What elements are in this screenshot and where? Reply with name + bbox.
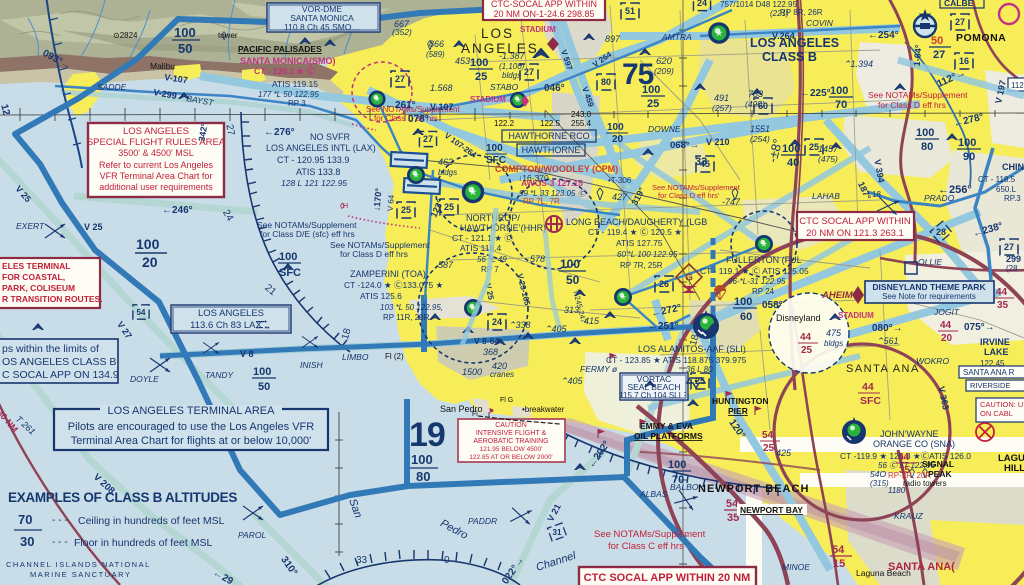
svg-text:PARK, COLISEUM: PARK, COLISEUM: [2, 283, 75, 293]
svg-text:JOHN’WAYNE: JOHN’WAYNE: [880, 429, 939, 439]
svg-text:for Class D eff hrs: for Class D eff hrs: [340, 249, 408, 259]
svg-text:255.4: 255.4: [571, 119, 592, 128]
svg-text:CT - 123.85 ★ ATIS 118.875 3: CT - 123.85 ★ ATIS 118.875 379.975: [606, 355, 747, 365]
svg-text:50: 50: [566, 273, 580, 287]
svg-text:FULLERTON (FUL: FULLERTON (FUL: [726, 255, 802, 265]
svg-text:CALBE: CALBE: [944, 0, 974, 8]
svg-text:Refer to current Los Angeles: Refer to current Los Angeles: [99, 160, 214, 170]
svg-text:WOKRO: WOKRO: [916, 356, 949, 366]
svg-text:LOS ANGELES TERMINAL AREA: LOS ANGELES TERMINAL AREA: [108, 405, 276, 417]
svg-text:←261°: ←261°: [385, 100, 416, 111]
svg-text:35: 35: [899, 465, 911, 476]
svg-text:•breakwater: •breakwater: [522, 405, 565, 414]
svg-text:(475): (475): [818, 154, 838, 164]
svg-text:CAUTION: CAUTION: [495, 422, 527, 429]
svg-text:STADIUM: STADIUM: [838, 311, 874, 320]
svg-text:54O: 54O: [870, 469, 886, 479]
svg-text:587: 587: [438, 260, 454, 270]
svg-text:ATIS 119.15: ATIS 119.15: [272, 79, 318, 89]
svg-text:100: 100: [174, 25, 196, 40]
svg-text:SADDE: SADDE: [97, 82, 127, 92]
svg-text:CLASS B: CLASS B: [762, 50, 817, 64]
svg-text:Fl (2): Fl (2): [385, 352, 404, 361]
svg-text:Floor in hundreds of feet MSL: Floor in hundreds of feet MSL: [74, 537, 212, 549]
svg-text:HILLS: HILLS: [1004, 463, 1024, 474]
svg-text:LOS ANGELES INTL (LAX): LOS ANGELES INTL (LAX): [266, 143, 376, 153]
svg-text:(315): (315): [870, 479, 889, 488]
svg-text:RP 7L, 7R: RP 7L, 7R: [523, 197, 560, 206]
svg-text:Fl G: Fl G: [500, 397, 513, 404]
svg-text:SIGNAL: SIGNAL: [922, 459, 954, 469]
svg-text:←225°: ←225°: [800, 88, 831, 99]
svg-text:NEWPORT BAY: NEWPORT BAY: [740, 505, 803, 515]
svg-text:COMPTON/WOODLEY (CPM): COMPTON/WOODLEY (CPM): [495, 164, 618, 174]
svg-text:0: 0: [444, 555, 450, 566]
svg-text:SANTA MONICA(SMO): SANTA MONICA(SMO): [240, 56, 336, 66]
svg-text:18: 18: [872, 190, 881, 199]
svg-text:SANTA ANA(: SANTA ANA(: [888, 561, 955, 573]
svg-text:462: 462: [438, 157, 453, 167]
svg-text:075°→: 075°→: [964, 322, 995, 333]
svg-text:866: 866: [429, 39, 444, 49]
svg-text:100: 100: [253, 366, 271, 378]
svg-text:←276°: ←276°: [264, 127, 295, 138]
svg-text:PIER: PIER: [728, 406, 748, 416]
svg-text:KRAUZ: KRAUZ: [894, 511, 924, 521]
svg-text:TANDY: TANDY: [205, 370, 235, 380]
svg-text:CT - 120.95 133.9: CT - 120.95 133.9: [277, 155, 349, 165]
svg-text:- - -: - - -: [52, 515, 68, 526]
svg-text:STADIUM→: STADIUM→: [470, 95, 514, 104]
svg-text:Pilots are encouraged to use t: Pilots are encouraged to use the Los Ang…: [68, 421, 314, 433]
svg-text:bldgs: bldgs: [824, 339, 843, 348]
svg-text:44: 44: [996, 287, 1008, 298]
svg-text:STABO: STABO: [490, 82, 519, 92]
svg-text:1-64°: 1-64°: [912, 44, 924, 67]
svg-text:↓16-370: ↓16-370: [518, 173, 549, 183]
svg-text:Terminal Area Chart for flight: Terminal Area Chart for flights at or be…: [71, 435, 312, 447]
svg-text:LIMBO: LIMBO: [342, 352, 369, 362]
svg-text:See Note for requirements: See Note for requirements: [882, 292, 976, 301]
svg-text:368: 368: [483, 347, 498, 357]
svg-text:V 25: V 25: [84, 222, 103, 232]
svg-text:27: 27: [1004, 242, 1014, 252]
svg-text:NEWPORT BEACH: NEWPORT BEACH: [698, 483, 809, 495]
svg-text:CAUTION: U: CAUTION: U: [980, 400, 1023, 409]
svg-text:←251°: ←251°: [648, 321, 679, 332]
svg-text:CHANNEL ISLANDS NATIONAL: CHANNEL ISLANDS NATIONAL: [6, 560, 151, 569]
svg-text:DISNEYLAND THEME PARK: DISNEYLAND THEME PARK: [872, 282, 986, 292]
svg-text:Malibu: Malibu: [150, 61, 175, 71]
svg-text:CT - 119.1 ★ Ⓒ ATIS 125.05: CT - 119.1 ★ Ⓒ ATIS 125.05: [700, 266, 809, 276]
svg-text:70: 70: [18, 512, 32, 527]
svg-text:44: 44: [898, 452, 910, 463]
svg-text:for Class D/E (sfc) eff hrs: for Class D/E (sfc) eff hrs: [260, 229, 355, 239]
svg-text:1.568: 1.568: [430, 83, 453, 93]
svg-text:26: 26: [659, 279, 669, 289]
svg-text:DOYLE: DOYLE: [130, 374, 159, 384]
svg-text:96-*L-31 122.95: 96-*L-31 122.95: [728, 277, 786, 286]
svg-text:RP 7R, 25R: RP 7R, 25R: [620, 261, 663, 270]
svg-text:112: 112: [1011, 81, 1024, 90]
svg-text:Fl: Fl: [472, 411, 478, 418]
svg-text:⊙2824: ⊙2824: [113, 31, 138, 40]
svg-text:(589): (589): [426, 50, 445, 59]
svg-text:491: 491: [714, 93, 729, 103]
svg-text:ATIS 133.8: ATIS 133.8: [296, 167, 340, 177]
svg-text:25: 25: [801, 345, 813, 356]
svg-text:HAWTHORNE’(HHR): HAWTHORNE’(HHR): [460, 223, 546, 233]
svg-text:100: 100: [470, 57, 488, 69]
svg-text:STADIUM: STADIUM: [520, 25, 556, 34]
svg-text:ps within the limits of: ps within the limits of: [2, 343, 99, 355]
svg-text:15: 15: [833, 558, 845, 570]
svg-text:PEAK: PEAK: [928, 469, 952, 479]
svg-text:080°→: 080°→: [872, 323, 903, 334]
svg-text:EXERT: EXERT: [16, 221, 45, 231]
svg-text:36 L 80: 36 L 80: [686, 365, 713, 374]
svg-text:INISH: INISH: [300, 360, 324, 370]
svg-text:PAROL: PAROL: [238, 530, 266, 540]
svg-text:51: 51: [625, 6, 635, 16]
svg-text:EXAMPLES OF CLASS B ALTITUDES: EXAMPLES OF CLASS B ALTITUDES: [8, 490, 237, 505]
svg-text:MARINE SANCTUARY: MARINE SANCTUARY: [30, 570, 131, 579]
svg-text:100: 100: [560, 257, 580, 271]
svg-text:35: 35: [997, 300, 1009, 311]
svg-text:(490): (490): [745, 99, 765, 109]
svg-text:90: 90: [963, 151, 975, 163]
svg-text:54: 54: [762, 430, 774, 441]
svg-text:AHEIM: AHEIM: [821, 290, 854, 301]
svg-text:046°: 046°: [544, 83, 565, 94]
svg-text:HAWTHORNE RCO: HAWTHORNE RCO: [508, 131, 589, 141]
svg-text:HUNTINGTON: HUNTINGTON: [712, 396, 769, 406]
svg-text:20 NM ON-1-24.6 298.85: 20 NM ON-1-24.6 298.85: [493, 9, 594, 19]
svg-text:50: 50: [258, 381, 270, 393]
svg-text:AMTRA: AMTRA: [661, 32, 692, 42]
svg-text:bldgs: bldgs: [502, 71, 521, 80]
svg-text:See NOTAMs/Supplement: See NOTAMs/Supplement: [868, 90, 968, 100]
svg-text:122.2: 122.2: [494, 119, 515, 128]
svg-text:425: 425: [776, 448, 792, 458]
svg-text:578: 578: [530, 254, 545, 264]
svg-text:44: 44: [940, 320, 952, 331]
svg-text:NO SVFR: NO SVFR: [310, 132, 351, 142]
svg-text:25: 25: [475, 71, 487, 83]
svg-text:31: 31: [553, 528, 562, 537]
svg-text:80: 80: [921, 141, 933, 153]
svg-text:VFR Terminal Area Chart for: VFR Terminal Area Chart for: [100, 171, 213, 181]
svg-text:897: 897: [605, 34, 621, 44]
svg-text:100: 100: [734, 296, 752, 308]
svg-text:ZAMPERINI (TOA): ZAMPERINI (TOA): [350, 269, 426, 279]
svg-text:54: 54: [137, 308, 146, 317]
svg-text:HAWTHORNE: HAWTHORNE: [522, 145, 581, 155]
svg-text:- - -: - - -: [52, 537, 68, 548]
svg-text:tower: tower: [218, 31, 238, 40]
svg-text:ATIS 118.4: ATIS 118.4: [460, 243, 502, 253]
svg-text:100: 100: [916, 127, 934, 139]
svg-text:cranes: cranes: [490, 370, 514, 379]
svg-text:SANTA ANA R: SANTA ANA R: [963, 368, 1015, 377]
svg-text:CTC-SOCAL APP WITHIN: CTC-SOCAL APP WITHIN: [491, 0, 597, 9]
svg-text:25: 25: [401, 205, 411, 215]
svg-text:See NOTAMs/Supplement: See NOTAMs/Supplement: [594, 529, 706, 540]
svg-text:078°→: 078°→: [408, 114, 439, 125]
svg-text:427: 427: [612, 192, 628, 202]
svg-text:SANTA ANA: SANTA ANA: [846, 363, 920, 375]
svg-text:(1,100): (1,100): [499, 62, 525, 71]
svg-text:for Class D eff hrs: for Class D eff hrs: [878, 100, 946, 110]
svg-text:LOS ANGELES: LOS ANGELES: [123, 126, 189, 137]
svg-text:V 210: V 210: [706, 137, 730, 147]
svg-text:54: 54: [832, 544, 845, 556]
svg-text:RP 8R, 26R: RP 8R, 26R: [780, 8, 823, 17]
svg-text:ALBAS: ALBAS: [639, 489, 668, 499]
svg-text:313: 313: [564, 305, 579, 315]
svg-text:100: 100: [279, 251, 297, 263]
svg-text:ON CABL: ON CABL: [980, 409, 1013, 418]
svg-text:100: 100: [607, 122, 624, 133]
svg-text:058°: 058°: [762, 300, 783, 311]
svg-text:453: 453: [455, 56, 470, 66]
svg-text:27: 27: [955, 17, 965, 27]
svg-text:JOGIT: JOGIT: [933, 307, 960, 317]
svg-text:V 8-64: V 8-64: [474, 336, 499, 346]
svg-text:3500' & 4500' MSL: 3500' & 4500' MSL: [118, 148, 194, 158]
svg-text:V 64: V 64: [386, 194, 396, 212]
svg-text:(254): (254): [750, 134, 770, 144]
svg-text:CHIN: CHIN: [1002, 162, 1024, 172]
svg-text:⌃405: ⌃405: [560, 376, 584, 386]
svg-text:27: 27: [423, 134, 433, 144]
svg-text:C SOCAL APP ON 134.9: C SOCAL APP ON 134.9: [2, 369, 119, 381]
svg-text:for Class.D eff hrs’: for Class.D eff hrs’: [658, 191, 720, 200]
svg-text:122.5: 122.5: [540, 119, 561, 128]
svg-text:OIL PLATFORMS: OIL PLATFORMS: [634, 431, 703, 441]
svg-text:110.8 Ch 45 SMO…: 110.8 Ch 45 SMO…: [284, 22, 360, 32]
svg-text:068°→: 068°→: [670, 140, 699, 151]
svg-text:100: 100: [958, 137, 976, 149]
svg-text:⌃1.394: ⌃1.394: [843, 59, 873, 69]
svg-text:ATIS 125.6: ATIS 125.6: [360, 291, 402, 301]
svg-text:415: 415: [584, 316, 600, 326]
svg-text:←254°: ←254°: [868, 30, 899, 41]
svg-text:121.95 BELOW 4500': 121.95 BELOW 4500': [480, 446, 543, 453]
svg-text:⌃338: ⌃338: [508, 320, 531, 330]
svg-text:475: 475: [826, 328, 842, 338]
svg-text:radio towers: radio towers: [903, 479, 947, 488]
svg-text:20: 20: [142, 254, 158, 270]
svg-text:RP 24: RP 24: [752, 287, 775, 296]
svg-text:CT -124.0 ★ Ⓒ133.075 ★: CT -124.0 ★ Ⓒ133.075 ★: [344, 280, 444, 290]
svg-text:IRVINE: IRVINE: [980, 337, 1010, 347]
svg-text:ELES TERMINAL: ELES TERMINAL: [2, 261, 70, 271]
svg-text:LOS ALAMITOS-AAF (SLI): LOS ALAMITOS-AAF (SLI): [638, 344, 746, 354]
svg-text:27: 27: [933, 49, 945, 61]
svg-text:R TRANSITION ROUTES.: R TRANSITION ROUTES.: [2, 294, 103, 304]
svg-text:783: 783: [748, 89, 763, 99]
svg-text:100: 100: [411, 452, 433, 467]
svg-text:25: 25: [695, 376, 705, 386]
svg-text:LAHAB: LAHAB: [812, 191, 840, 201]
svg-text:BALBO: BALBO: [670, 482, 699, 492]
svg-text:FOR COASTAL,: FOR COASTAL,: [2, 272, 65, 282]
svg-text:Ceiling in hundreds of feet MS: Ceiling in hundreds of feet MSL: [78, 515, 225, 527]
svg-text:100: 100: [642, 84, 660, 96]
svg-text:V 107: V 107: [430, 102, 454, 112]
svg-text:20 NM ON 121.3 263.1: 20 NM ON 121.3 263.1: [806, 228, 904, 239]
svg-text:122.85 AT OR BELOW 2000': 122.85 AT OR BELOW 2000': [469, 454, 552, 461]
svg-text:V 8: V 8: [240, 349, 254, 359]
svg-text:20: 20: [941, 333, 953, 344]
svg-text:ATIS 127.75: ATIS 127.75: [616, 238, 663, 248]
svg-text:650.L: 650.L: [996, 185, 1017, 194]
svg-text:RP.3: RP.3: [1004, 194, 1021, 203]
svg-text:OS ANGELES CLASS B: OS ANGELES CLASS B: [2, 356, 116, 368]
svg-text:RP 3: RP 3: [288, 99, 306, 108]
svg-text:DOWNE: DOWNE: [648, 124, 681, 134]
svg-text:25: 25: [647, 98, 659, 110]
svg-text:44: 44: [862, 381, 874, 393]
svg-text:122.45: 122.45: [980, 359, 1005, 368]
svg-text:80: 80: [601, 77, 611, 87]
svg-text:CTC SOCAL APP WITHIN 20 NM: CTC SOCAL APP WITHIN 20 NM: [584, 572, 751, 584]
svg-text:COVIN: COVIN: [806, 18, 834, 28]
svg-text:↓170°: ↓170°: [372, 187, 384, 211]
svg-text:bldgs: bldgs: [438, 168, 457, 177]
svg-text:CT - 121.1 ★ Ⓒ: CT - 121.1 ★ Ⓒ: [452, 233, 513, 243]
svg-text:SFC: SFC: [860, 395, 881, 407]
svg-text:additional user requirements: additional user requirements: [99, 182, 213, 192]
svg-text:⌃561: ⌃561: [876, 336, 899, 346]
svg-text:20: 20: [612, 134, 624, 145]
svg-text:60: 60: [740, 311, 752, 323]
svg-text:V.264: V.264: [772, 31, 795, 41]
svg-text:(352): (352): [392, 27, 412, 37]
svg-text:CT - 119.4 ★ Ⓒ 120.5 ★: CT - 119.4 ★ Ⓒ 120.5 ★: [588, 227, 682, 237]
svg-text:LOS: LOS: [481, 26, 514, 41]
svg-text:40: 40: [787, 157, 799, 169]
svg-text:25: 25: [444, 202, 454, 212]
svg-text:33: 33: [356, 555, 368, 566]
svg-text:113.6 Ch 83 LAX: 113.6 Ch 83 LAX: [190, 320, 262, 331]
svg-text:1457: 1457: [818, 144, 839, 154]
svg-text:OLLIE: OLLIE: [918, 257, 942, 267]
svg-text:115.7 Ch 104 SLI⋮: 115.7 Ch 104 SLI⋮: [619, 391, 689, 400]
svg-text:RIVERSIDE: RIVERSIDE: [970, 381, 1010, 390]
svg-text:28: 28: [936, 227, 946, 237]
svg-text:100: 100: [668, 459, 686, 471]
svg-text:299: 299: [1006, 254, 1021, 264]
svg-text:27: 27: [524, 67, 534, 77]
svg-text:80: 80: [416, 469, 430, 484]
svg-text:243.0: 243.0: [571, 110, 592, 119]
svg-text:100: 100: [830, 85, 848, 97]
svg-text:16: 16: [959, 56, 969, 66]
svg-text:100: 100: [486, 143, 503, 154]
svg-text:G: G: [685, 273, 693, 284]
svg-text:LAKE: LAKE: [984, 347, 1009, 357]
svg-text:INTENSIVE FLIGHT &: INTENSIVE FLIGHT &: [476, 430, 547, 437]
svg-text:LONG BEACH/DAUGHERTY (LGB: LONG BEACH/DAUGHERTY (LGB: [566, 217, 707, 227]
svg-text:128 L 121 122.95: 128 L 121 122.95: [281, 178, 347, 188]
svg-text:50: 50: [931, 35, 943, 47]
svg-text:(209): (209): [654, 66, 674, 76]
svg-text:33: 33: [695, 156, 707, 168]
svg-text:Disneyland: Disneyland: [776, 313, 821, 323]
svg-text:30: 30: [20, 534, 34, 549]
svg-text:(257): (257): [712, 103, 732, 113]
svg-text:FERMY ø: FERMY ø: [580, 364, 617, 374]
svg-text:AEROBATIC TRAINING: AEROBATIC TRAINING: [473, 438, 548, 445]
svg-text:SFC: SFC: [279, 267, 301, 279]
svg-text:PADDR: PADDR: [468, 516, 497, 526]
svg-text:44: 44: [800, 332, 812, 343]
svg-text:PACIFIC PALISADES: PACIFIC PALISADES: [238, 44, 322, 54]
svg-text:25: 25: [763, 443, 775, 454]
svg-text:24: 24: [697, 0, 707, 8]
svg-text:60’*L 100 122.95: 60’*L 100 122.95: [617, 250, 678, 259]
svg-text:27: 27: [395, 74, 405, 84]
svg-text:MINOE: MINOE: [782, 562, 810, 572]
svg-text:RP 11R, 29R: RP 11R, 29R: [383, 313, 430, 322]
svg-text:ORANGE CO (SNA): ORANGE CO (SNA): [873, 439, 955, 449]
svg-text:103 *L 50 122.95,: 103 *L 50 122.95,: [380, 303, 443, 312]
svg-text:•T-306: •T-306: [608, 176, 632, 185]
svg-text:24: 24: [492, 317, 502, 327]
svg-text:(28: (28: [1006, 264, 1018, 273]
svg-text:-1.387: -1.387: [499, 51, 526, 61]
svg-text:←256°: ←256°: [938, 184, 972, 196]
svg-text:H: H: [343, 203, 348, 210]
svg-text:POMONA: POMONA: [956, 32, 1006, 44]
svg-text:70: 70: [835, 99, 847, 111]
svg-text:50: 50: [178, 41, 192, 56]
svg-text:EMMY & EVA: EMMY & EVA: [640, 421, 693, 431]
svg-text:CT - 118.5: CT - 118.5: [978, 175, 1016, 184]
svg-text:177 *L 50 122.95: 177 *L 50 122.95: [258, 90, 319, 99]
svg-text:LOS ANGELES: LOS ANGELES: [198, 308, 264, 319]
svg-text:⌃405: ⌃405: [544, 324, 568, 334]
svg-text:1500: 1500: [462, 367, 482, 377]
svg-text:for Class C eff hrs: for Class C eff hrs: [608, 541, 684, 552]
svg-text:-747: -747: [722, 197, 741, 207]
svg-text:CTC SOCAL APP WITHIN: CTC SOCAL APP WITHIN: [799, 216, 911, 227]
svg-text:19: 19: [409, 416, 445, 454]
svg-text:←246°: ←246°: [162, 205, 193, 216]
svg-text:100: 100: [136, 236, 160, 252]
svg-text:•━ ••: •━ ••: [256, 325, 270, 332]
svg-text:1551: 1551: [750, 124, 770, 134]
svg-text:CT - 120.1 ★ Ⓒ: CT - 120.1 ★ Ⓒ: [254, 66, 315, 76]
svg-text:100: 100: [782, 143, 800, 155]
